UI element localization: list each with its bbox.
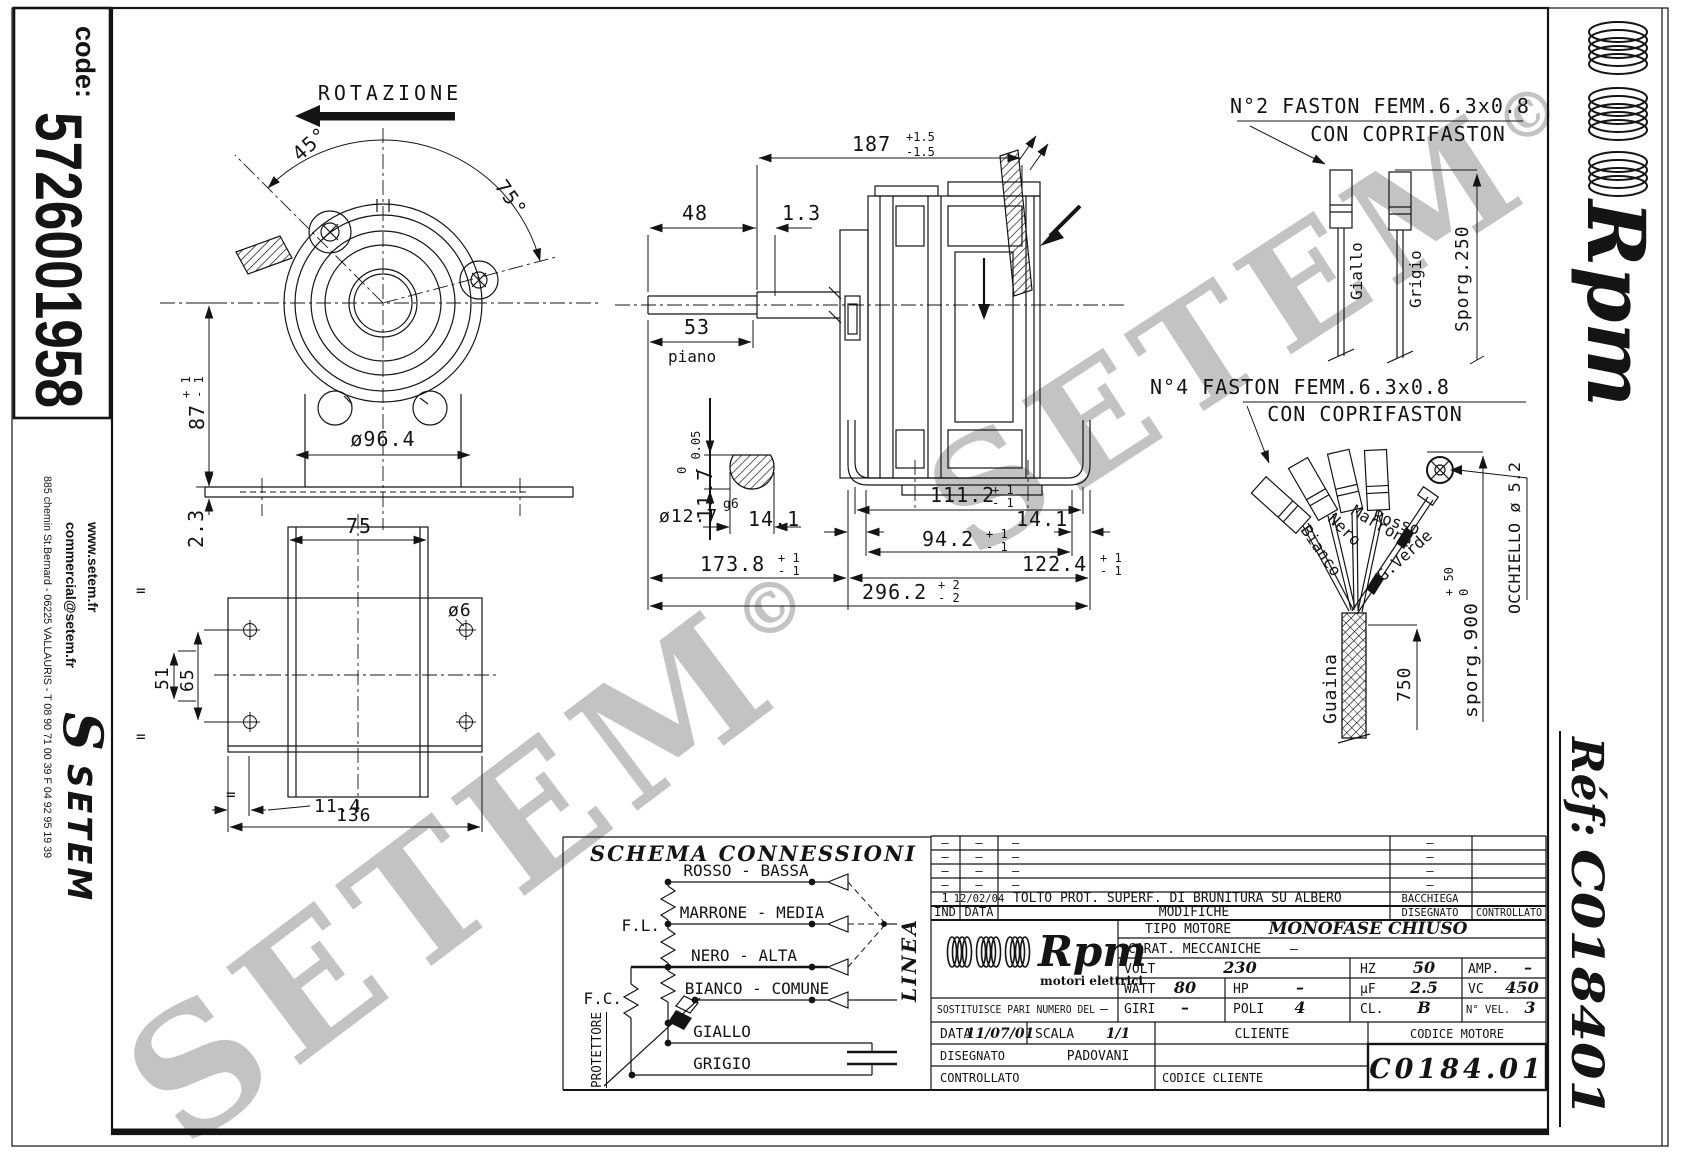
- dim-1224-tm: - 1: [1100, 564, 1122, 578]
- rev-dash: –: [1012, 836, 1020, 850]
- tb-logo: Rpm motori elettrici: [948, 927, 1147, 988]
- dim-1224-tp: + 1: [1100, 551, 1122, 565]
- rev-dash: –: [1012, 878, 1020, 892]
- rev1-ind: 1: [941, 891, 948, 905]
- dim-141-right: 14.1: [1016, 507, 1068, 531]
- faston2-subtitle: CON COPRIFASTON: [1310, 122, 1506, 146]
- faston4-subtitle: CON COPRIFASTON: [1267, 402, 1463, 426]
- tipo-value: MONOFASE CHIUSO: [1268, 919, 1468, 939]
- dim-136: 136: [336, 805, 372, 826]
- dim-96-value: ø96.4: [350, 427, 415, 451]
- rev-dash: –: [975, 850, 983, 864]
- rev1-author: BACCHIEGA: [1402, 893, 1460, 905]
- dim-942-tm: - 1: [986, 540, 1008, 554]
- giri-label: GIRI: [1124, 1002, 1155, 1017]
- dim-87-tol-minus: - 1: [192, 376, 206, 398]
- disegnato-value: PADOVANI: [1067, 1049, 1130, 1064]
- cliente-label: CLIENTE: [1235, 1027, 1290, 1042]
- setem-logo-text: SETEM: [60, 764, 99, 903]
- dim-2962-tm: - 2: [938, 591, 960, 605]
- cl-label: CL.: [1360, 1002, 1383, 1017]
- sostituisce-label: SOSTITUISCE PARI NUMERO DEL: [937, 1004, 1095, 1016]
- faston4-detail: N°4 FASTON FEMM.6.3x0.8 CON COPRIFASTON …: [1150, 375, 1527, 743]
- wire-rosso-bassa: ROSSO - BASSA: [683, 861, 809, 880]
- dim-13: 1.3: [782, 201, 821, 225]
- wire-bianco-comune: BIANCO - COMUNE: [685, 979, 830, 998]
- eyelet-shank: [1418, 487, 1438, 506]
- rev-dash: –: [975, 878, 983, 892]
- ref-label: Réf:: [1561, 735, 1612, 837]
- amp-value: –: [1524, 958, 1532, 977]
- rev-dash: –: [941, 850, 949, 864]
- dim-87-tol-plus: + 1: [179, 376, 193, 398]
- side-view: 187 +1.5 -1.5 48 1.3 53 piano 11.7 0 - 0…: [615, 130, 1125, 610]
- code-value: 5726001958: [22, 112, 96, 408]
- angle-75-label: 75°: [490, 175, 532, 221]
- dim-1224: 122.4: [1022, 552, 1087, 576]
- dim-117-tol-plus: 0: [675, 467, 689, 474]
- right-bar: Rpm Réf: C018401: [1560, 22, 1663, 1127]
- dim-87-value: 87: [185, 404, 209, 430]
- setem-logo: S SETEM: [51, 712, 115, 903]
- setem-logo-swirl: S: [51, 712, 115, 751]
- rev-dash: –: [975, 864, 983, 878]
- header-controllato: CONTROLLATO: [1476, 907, 1542, 919]
- hz-label: HZ: [1360, 962, 1376, 977]
- wire-marrone-media: MARRONE - MEDIA: [680, 903, 825, 922]
- angle-45-label: 45°: [287, 122, 332, 166]
- equal-mark-top: =: [136, 581, 146, 600]
- ref-block: Réf: C018401: [1560, 731, 1612, 1127]
- hp-label: HP: [1233, 982, 1249, 997]
- carat-value: –: [1290, 942, 1298, 957]
- rpm-coils-icon: [1589, 22, 1647, 196]
- nvel-label: N° VEL.: [1466, 1004, 1510, 1016]
- nvel-value: 3: [1524, 998, 1535, 1017]
- dim-48: 48: [682, 201, 708, 225]
- cl-value: B: [1416, 998, 1431, 1017]
- giri-value: –: [1181, 998, 1189, 1017]
- dim-141-left: 14.1: [748, 507, 800, 531]
- ref-value: C018401: [1561, 849, 1612, 1117]
- dim-117-tol-minus: - 0.05: [689, 431, 703, 474]
- dim-750: 750: [1394, 666, 1415, 702]
- protettore-label: PROTETTORE: [590, 1012, 605, 1088]
- dim-942: 94.2: [922, 527, 974, 551]
- dim-53: 53: [684, 315, 710, 339]
- codice-motore-value: C0184.01: [1369, 1054, 1545, 1085]
- fc-label: F.C.: [583, 989, 622, 1008]
- linea-label: LINEA: [897, 920, 921, 1003]
- header-data: DATA: [965, 905, 995, 919]
- wire-nero-alta: NERO - ALTA: [691, 946, 797, 965]
- disegnato-label: DISEGNATO: [940, 1049, 1005, 1063]
- carat-label: CARAT. MECCANICHE: [1128, 942, 1261, 957]
- dim-1112-tm: - 1: [992, 496, 1014, 510]
- faston2-wire-giallo: Giallo: [1347, 242, 1366, 300]
- equal-mark-base: =: [226, 785, 236, 804]
- left-info-strip: 885 chemin St.Bernard - 06225 VALLAURIS …: [41, 476, 115, 903]
- dim-75: 75: [346, 514, 372, 538]
- dim-1738: 173.8: [700, 552, 765, 576]
- scala-label: SCALA: [1035, 1027, 1074, 1042]
- dim-1112: 111.2: [930, 483, 995, 507]
- header-disegnato: DISEGNATO: [1402, 907, 1459, 919]
- faston4-f4: [1364, 449, 1389, 510]
- dim-942-tp: + 1: [986, 527, 1008, 541]
- email: commercial@setem.fr: [63, 522, 79, 668]
- dim-187-tol-minus: -1.5: [906, 145, 935, 159]
- fl-label: F.L.: [621, 916, 660, 935]
- website: www.setem.fr: [85, 521, 101, 613]
- dim-127-value: ø12.7: [659, 506, 718, 527]
- dim-187-tol-plus: +1.5: [906, 130, 935, 144]
- faston2-wire-grigio: Grigio: [1406, 250, 1425, 308]
- faston2-title: N°2 FASTON FEMM.6.3x0.8: [1230, 94, 1530, 118]
- rev-dash: –: [941, 836, 949, 850]
- dim-1112-tp: + 1: [992, 483, 1014, 497]
- vc-value: 450: [1505, 978, 1538, 997]
- rev1-modification: TOLTO PROT. SUPERF. DI BRUNITURA SU ALBE…: [1013, 891, 1342, 906]
- watt-value: 80: [1173, 978, 1196, 997]
- guaina-label: Guaina: [1320, 653, 1341, 724]
- rev-dash: –: [941, 878, 949, 892]
- rev-dash: –: [975, 836, 983, 850]
- dim-1738-tp: + 1: [778, 551, 800, 565]
- dim-dia6: ø6: [448, 600, 472, 621]
- dim-23-value: 2.3: [184, 509, 208, 548]
- shaft-fit: g6: [723, 497, 739, 512]
- rev-dash: –: [941, 864, 949, 878]
- rpm-logo-text: Rpm: [1569, 198, 1663, 407]
- dim-65: 65: [177, 668, 198, 692]
- hp-value: –: [1296, 978, 1304, 997]
- dim-87: 87 + 1 - 1: [179, 376, 209, 430]
- poli-label: POLI: [1233, 1002, 1264, 1017]
- wire-grigio: GRIGIO: [693, 1054, 751, 1073]
- dim-2962: 296.2: [862, 580, 927, 604]
- sporg900-value: sporg.900: [1461, 602, 1482, 718]
- sporg900: sporg.900 + 50 0: [1442, 567, 1482, 718]
- header-modifiche: MODIFICHE: [1159, 905, 1229, 920]
- sporg900-tol-zero: 0: [1457, 589, 1471, 596]
- dim-2962-tp: + 2: [938, 578, 960, 592]
- sostituisce-value: –: [1100, 1002, 1108, 1017]
- rev1-date: 12/02/04: [954, 893, 1005, 905]
- scala-value: 1/1: [1106, 1026, 1131, 1042]
- rev-dash: –: [1012, 864, 1020, 878]
- rev-dash: –: [1426, 850, 1434, 864]
- linea-arrows: [828, 874, 897, 1008]
- dim-51: 51: [152, 666, 173, 690]
- uf-value: 2.5: [1409, 978, 1438, 997]
- poli-value: 4: [1294, 998, 1305, 1017]
- tipo-label: TIPO MOTORE: [1145, 922, 1231, 937]
- bottom-view: 75 51 65 = = = ø6 11.4 136: [136, 514, 498, 832]
- tb-coils-icon: [948, 937, 1030, 967]
- dim-187: 187: [852, 132, 891, 156]
- code-label: code:: [70, 26, 100, 98]
- faston2-sporg: Sporg.250: [1452, 225, 1473, 332]
- watt-label: WATT: [1124, 982, 1155, 997]
- drawing-sheet: { "sidebar": { "code_label": "code:", "c…: [0, 0, 1683, 1153]
- rev-dash: –: [1426, 878, 1434, 892]
- rotazione-label: ROTAZIONE: [318, 81, 462, 105]
- volt-value: 230: [1222, 958, 1256, 977]
- wire-giallo: GIALLO: [693, 1022, 751, 1041]
- front-view: ROTAZIONE 45° 75° 87 + 1 - 1 ø96.4 2.3: [160, 81, 600, 548]
- vc-label: VC: [1468, 982, 1484, 997]
- hz-value: 50: [1413, 958, 1435, 977]
- piano-label: piano: [668, 347, 716, 366]
- rev-dash: –: [1426, 836, 1434, 850]
- header-ind: IND: [934, 905, 956, 919]
- codice-motore-label: CODICE MOTORE: [1410, 1027, 1504, 1041]
- faston4-f1: [1251, 477, 1310, 533]
- rev-dash: –: [1012, 850, 1020, 864]
- schema-connessioni: SCHEMA CONNESSIONI ROSSO - B: [563, 837, 931, 1090]
- dim-1738-tm: - 1: [778, 564, 800, 578]
- address-line: 885 chemin St.Bernard - 06225 VALLAURIS …: [41, 476, 53, 858]
- drawing-canvas: code: 5726001958 885 chemin St.Bernard -…: [0, 0, 1683, 1153]
- faston4-title: N°4 FASTON FEMM.6.3x0.8: [1150, 375, 1450, 399]
- amp-label: AMP.: [1468, 962, 1499, 977]
- faston2-detail: N°2 FASTON FEMM.6.3x0.8 CON COPRIFASTON …: [1230, 94, 1530, 364]
- volt-label: VOLT: [1124, 962, 1155, 977]
- controllato-label: CONTROLLATO: [940, 1071, 1019, 1085]
- data-value: 11/07/01: [966, 1026, 1035, 1042]
- occhiello-label: OCCHIELLO ø 5.2: [1505, 462, 1524, 614]
- sporg900-tol-plus: + 50: [1442, 567, 1456, 596]
- codice-cliente-label: CODICE CLIENTE: [1162, 1071, 1263, 1085]
- rev-dash: –: [1426, 864, 1434, 878]
- equal-mark-bottom: =: [136, 727, 146, 746]
- uf-label: µF: [1360, 982, 1376, 997]
